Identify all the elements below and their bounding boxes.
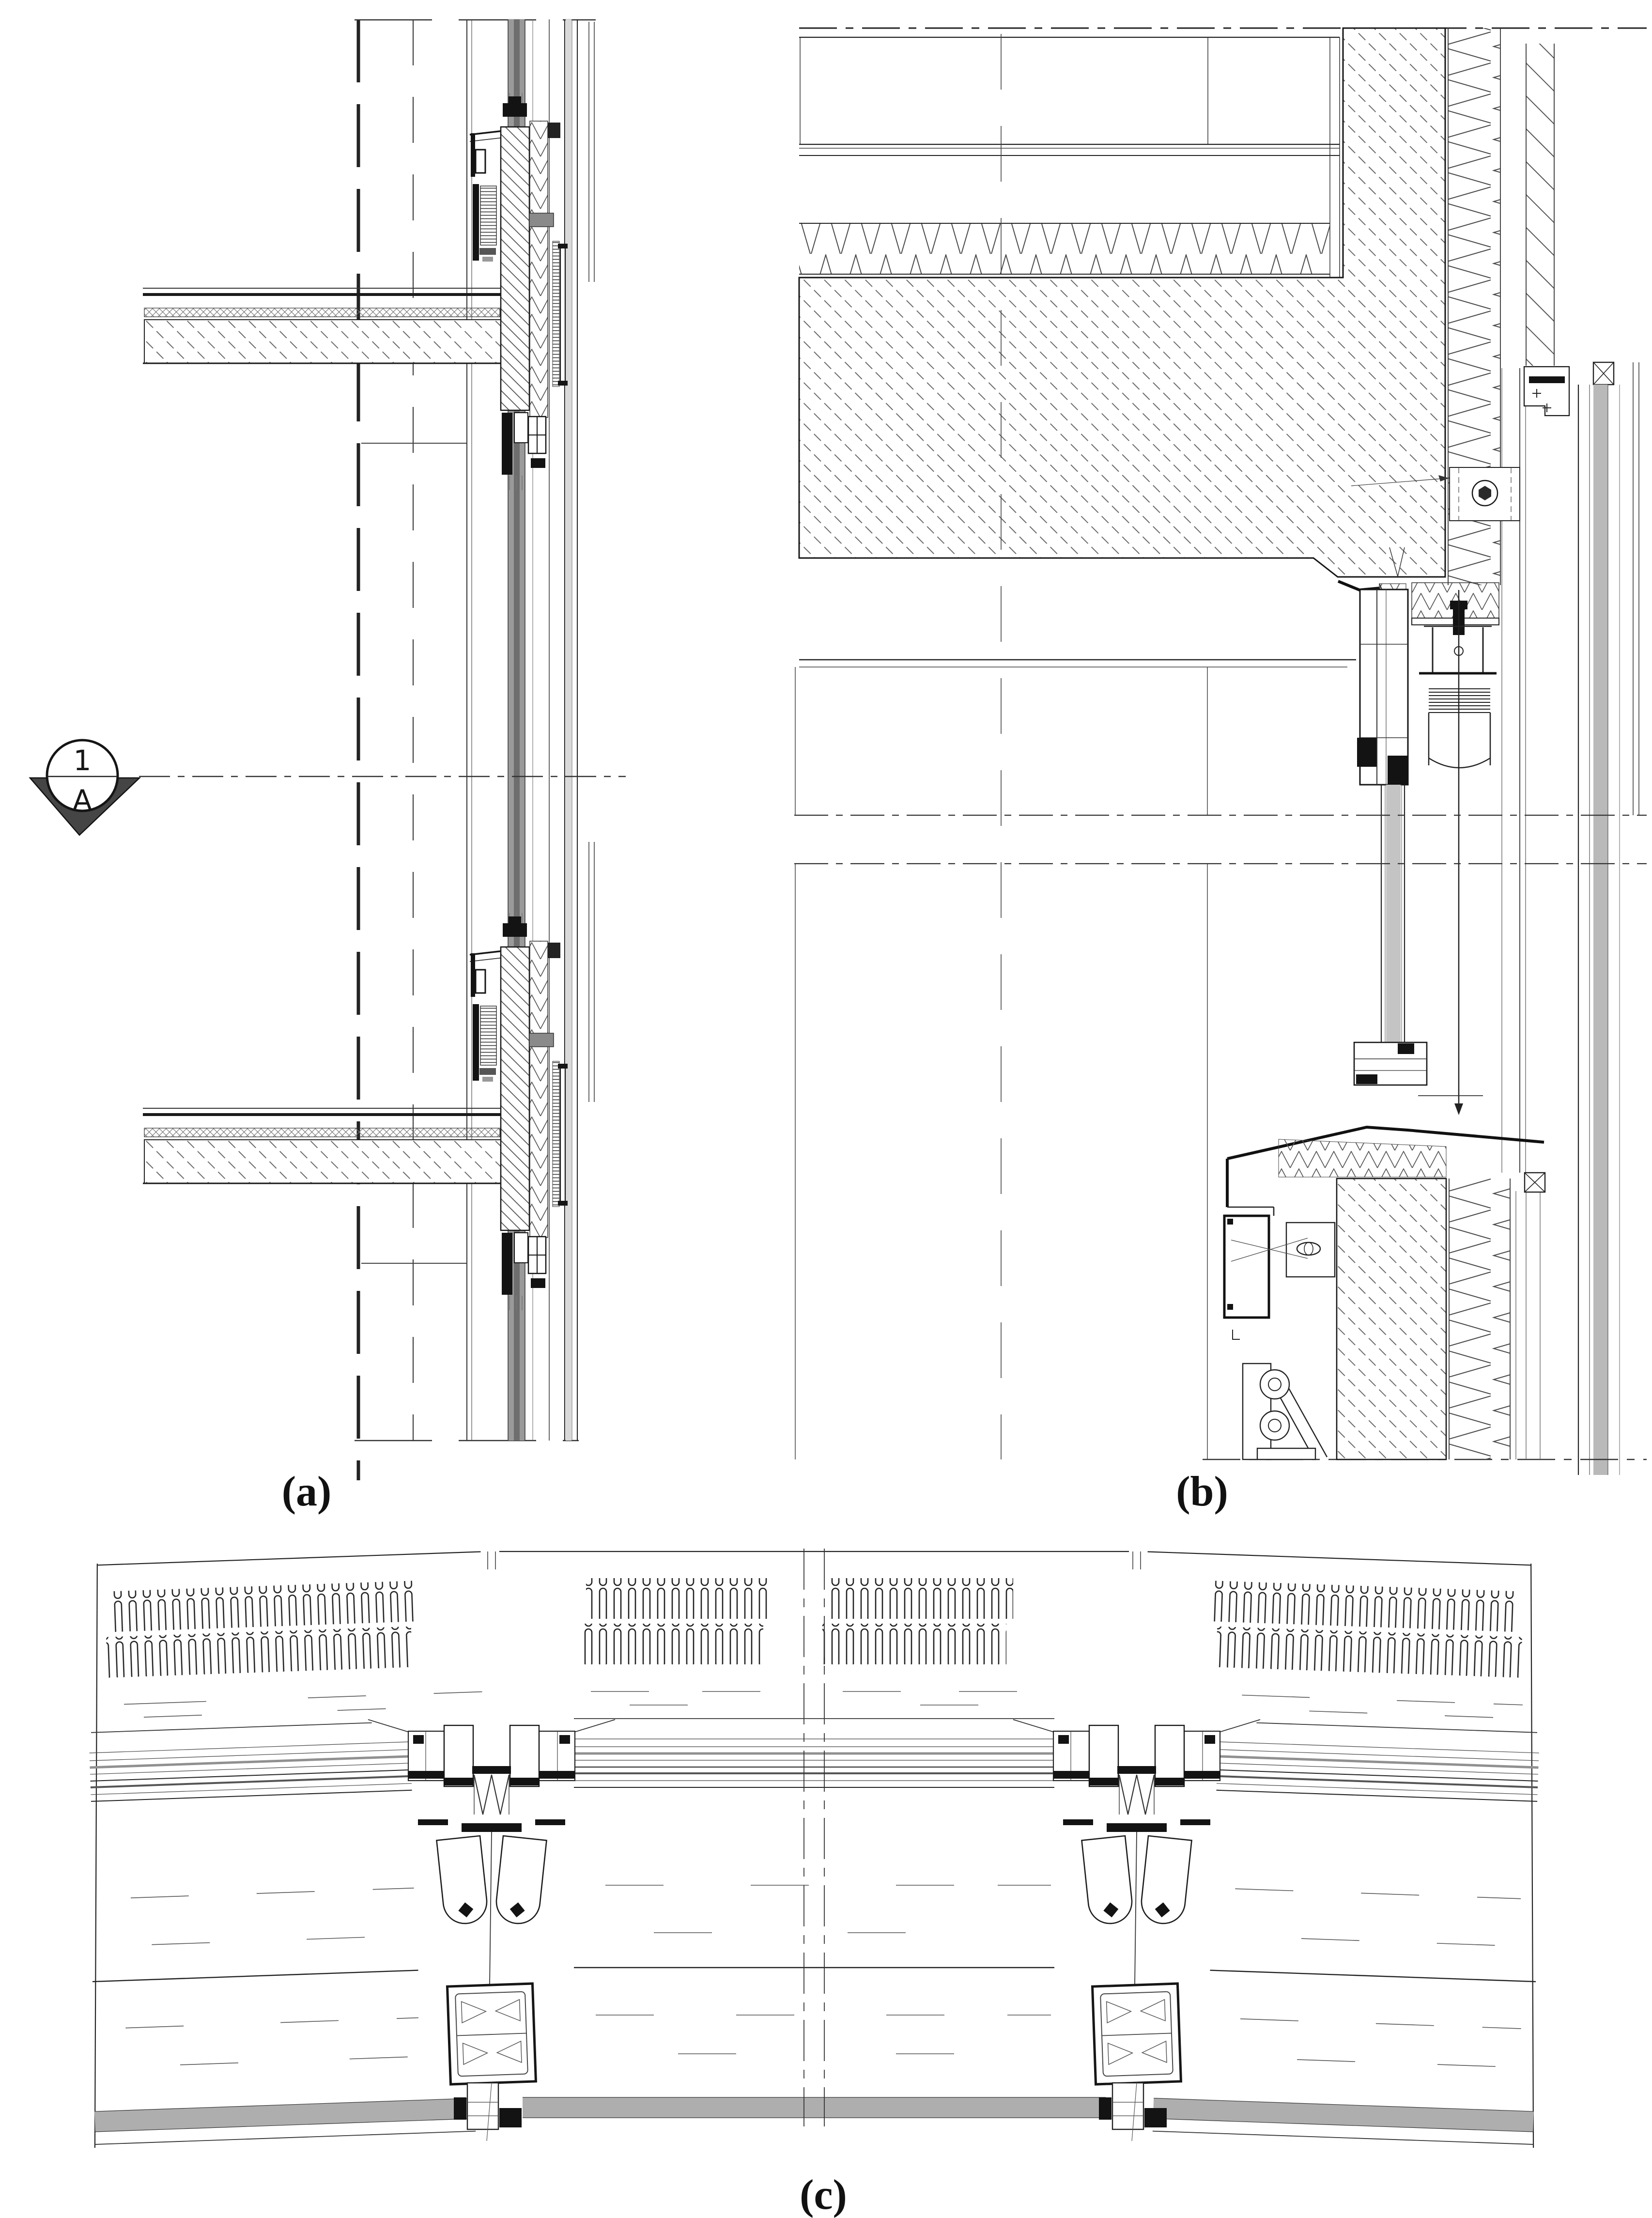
figure-page: 1 A — [0, 0, 1652, 2218]
mullion-joint-left — [368, 1720, 615, 2141]
panel-b-section-drawing — [794, 28, 1647, 1475]
vent-slots — [1216, 1627, 1522, 1678]
vent-slots — [110, 1581, 417, 1632]
concrete-slab-and-wall — [799, 28, 1449, 577]
window-head-detail — [799, 581, 1499, 785]
technical-drawing-figure: 1 A — [0, 0, 1652, 2218]
floor-slab-upper — [143, 288, 501, 443]
interior-boundary-lines — [794, 667, 1647, 1459]
window-glazing — [1381, 785, 1405, 1042]
vent-slots — [586, 1578, 770, 1619]
facade-bracket-upper — [1524, 367, 1569, 416]
glass-band — [1153, 2098, 1534, 2132]
transom-band — [574, 1739, 1054, 1787]
panel-c-plan-drawing — [75, 1549, 1554, 2148]
spandrel-module-lower — [470, 911, 568, 1310]
vent-slots — [106, 1627, 413, 1678]
vent-slots — [829, 1578, 1013, 1619]
panel-b-label: (b) — [1176, 1468, 1228, 1515]
glass-band — [523, 2097, 1106, 2118]
window-sill-detail — [1224, 1042, 1545, 1459]
vent-slots — [579, 1624, 763, 1664]
panel-a-label: (a) — [282, 1468, 332, 1515]
section-marker: 1 A — [30, 740, 626, 835]
transom-band — [1216, 1742, 1539, 1801]
transom-band — [89, 1742, 412, 1801]
anchor-plate-with-bolt — [1450, 467, 1520, 521]
center-bay — [488, 1551, 1141, 2118]
glass-pane-right — [1578, 362, 1639, 1475]
section-marker-letter: A — [73, 784, 92, 817]
vent-slots — [822, 1624, 1006, 1664]
panel-a-section-drawing — [143, 19, 596, 1480]
vent-slots — [1212, 1581, 1518, 1632]
cross-box-top — [1593, 362, 1614, 385]
floor-slab-lower — [143, 1108, 501, 1263]
insulation-strip-horizontal — [799, 223, 1330, 274]
glass-band — [94, 2098, 475, 2132]
section-marker-number: 1 — [74, 744, 92, 777]
panel-c-label: (c) — [800, 2171, 847, 2218]
spring-anchor-assembly — [1418, 590, 1490, 1115]
spandrel-module-upper — [470, 91, 568, 490]
center-axis-lines — [804, 1549, 824, 2126]
glazing-plane-lines — [565, 19, 594, 1441]
mullion-joint-right — [1013, 1720, 1260, 2141]
